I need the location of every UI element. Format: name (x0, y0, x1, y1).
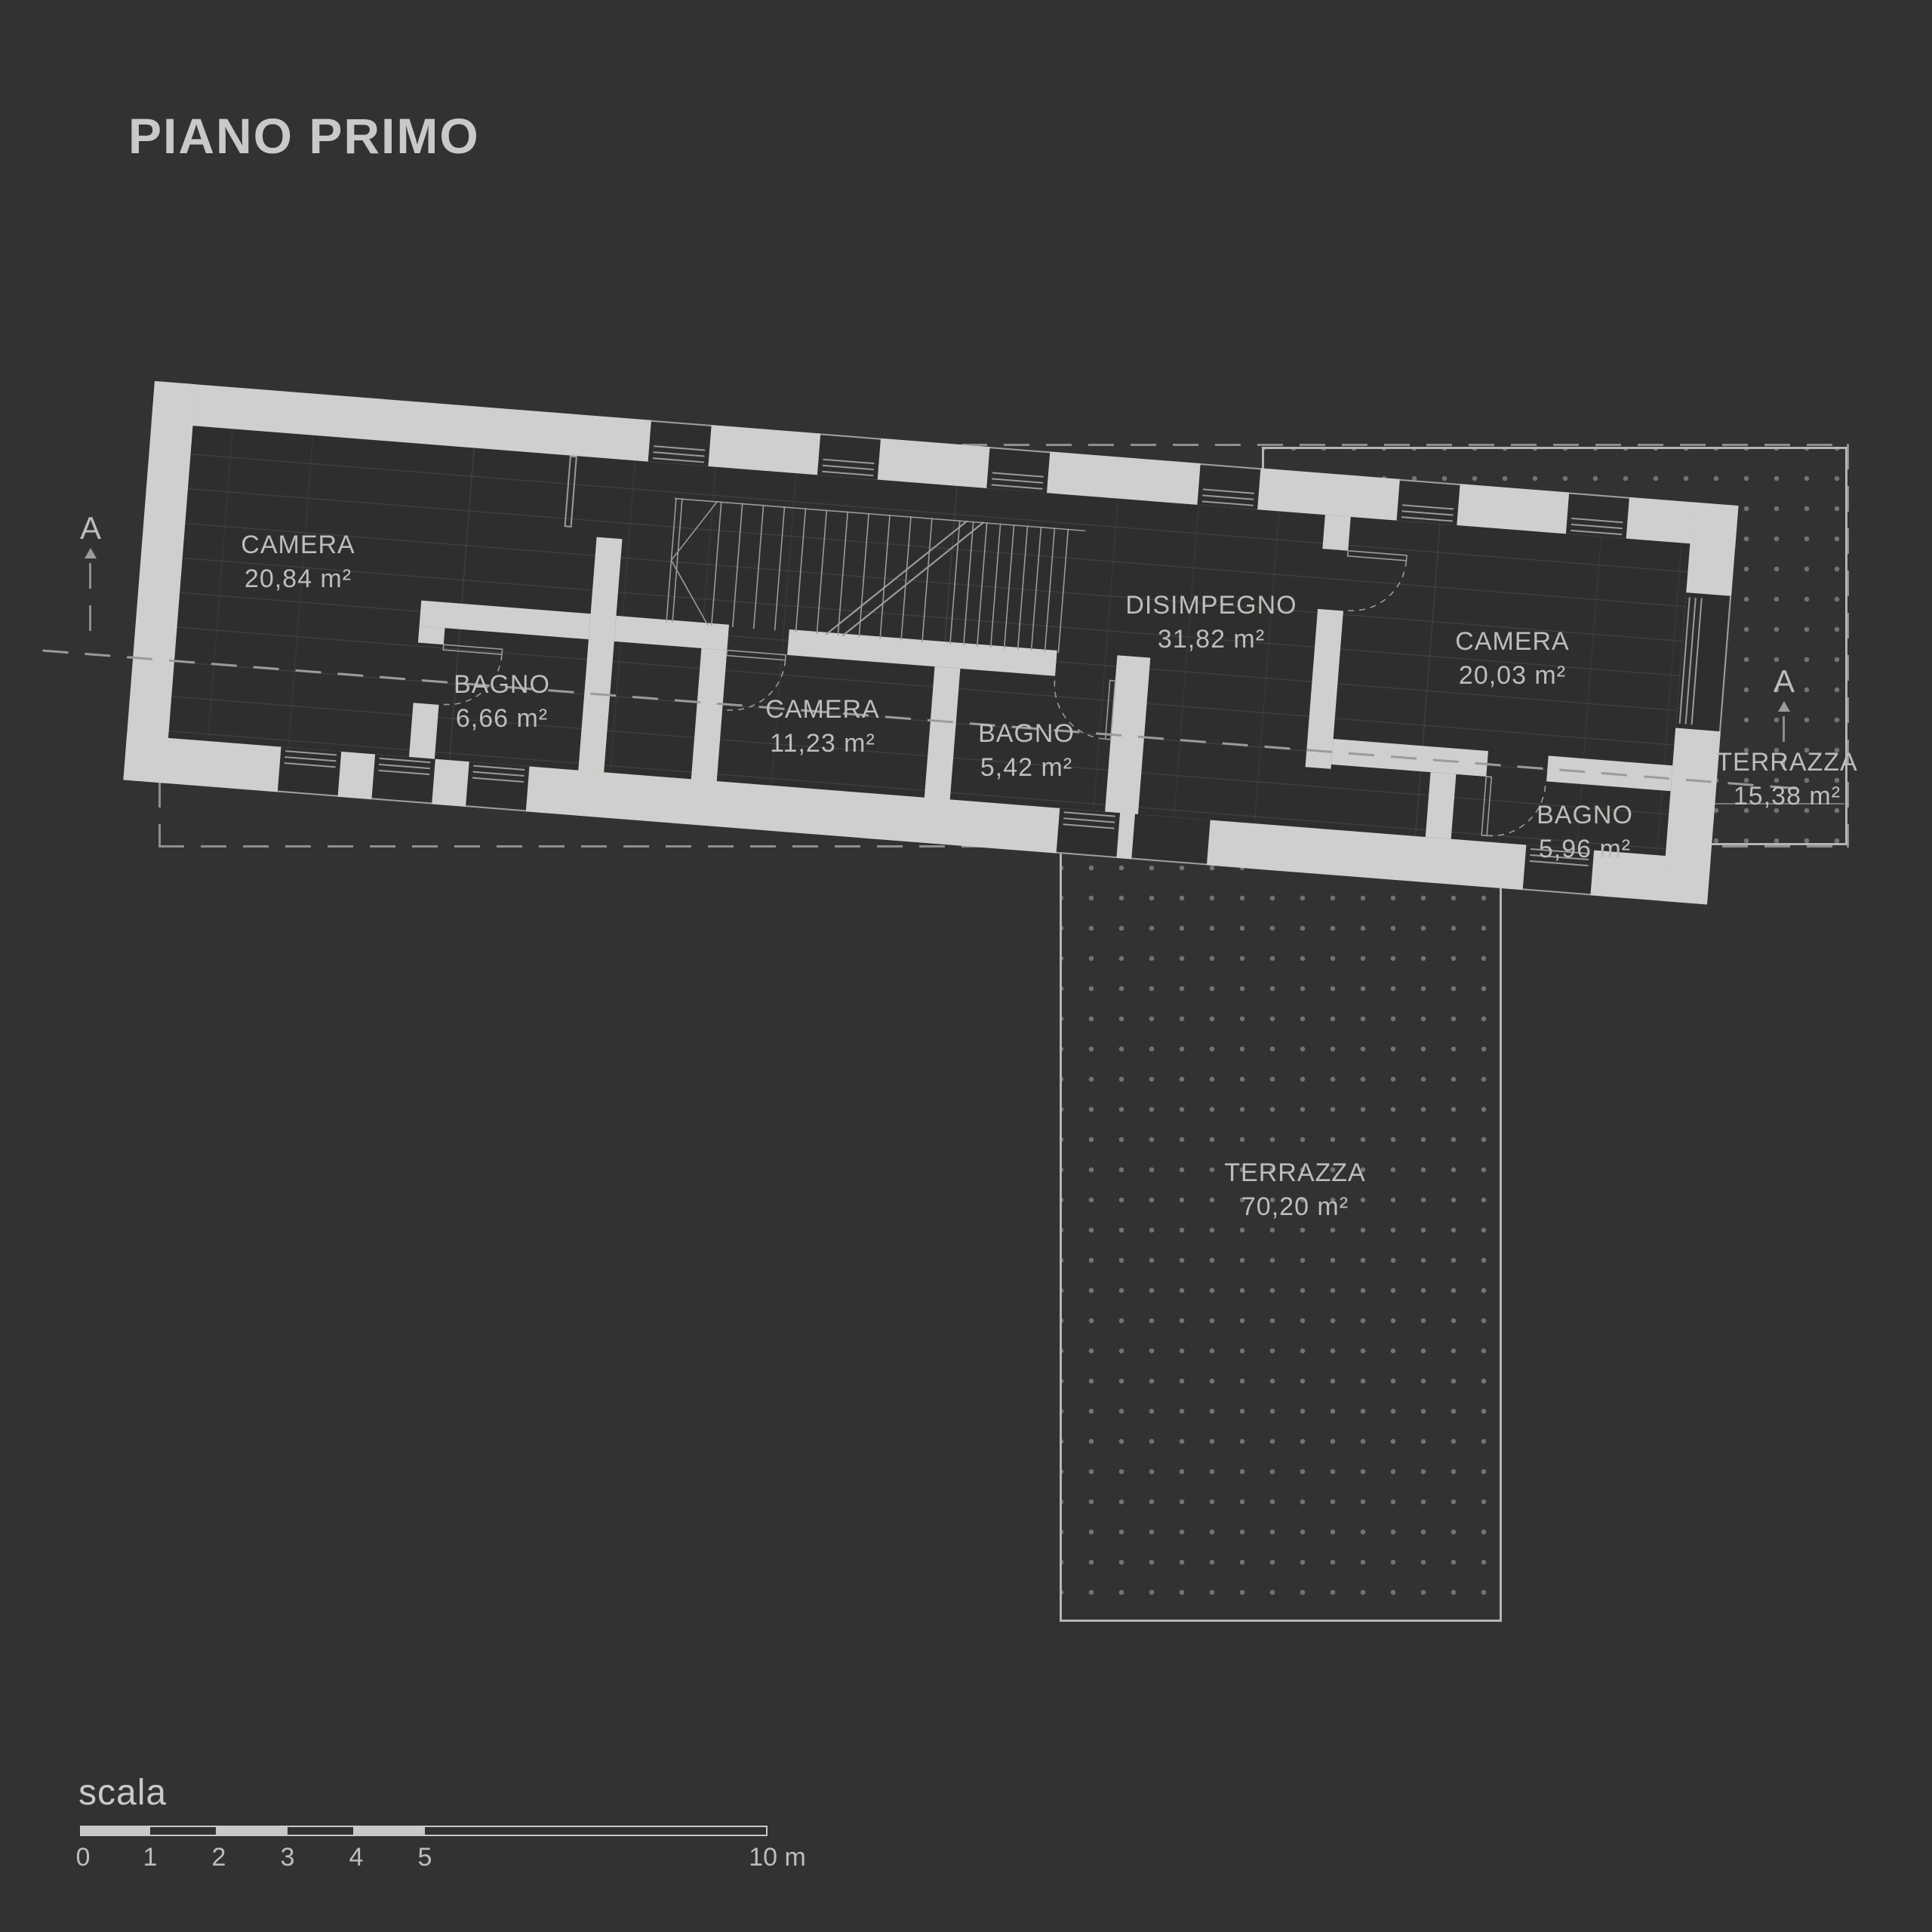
scale-tick-5: 5 (418, 1843, 432, 1872)
section-lead-left (89, 563, 91, 648)
window (986, 447, 1050, 493)
room-label-terrazza-1: TERRAZZA 15,38 m² (1716, 746, 1857, 814)
room-area: 15,38 m² (1716, 780, 1857, 814)
scale-tick-0: 0 (76, 1843, 91, 1872)
scale-segment (149, 1826, 217, 1836)
wall-bagno3-left (1426, 772, 1457, 838)
scale-tick-10m: 10 m (749, 1843, 806, 1872)
scale-label: scala (78, 1772, 167, 1814)
window (1675, 592, 1731, 731)
window (1397, 479, 1460, 525)
scale-bar (80, 1826, 768, 1836)
door (1343, 551, 1411, 619)
room-name: CAMERA (765, 693, 879, 727)
wall-bagno1-left-a (418, 626, 445, 645)
room-name: BAGNO (1537, 798, 1633, 832)
window (278, 747, 341, 797)
room-area: 70,20 m² (1224, 1190, 1365, 1224)
room-name: TERRAZZA (1716, 746, 1857, 780)
room-label-bagno-1: BAGNO 6,66 m² (454, 668, 550, 736)
wall-v5-a (1322, 515, 1350, 551)
room-label-camera-2: CAMERA 11,23 m² (765, 693, 879, 761)
window (466, 761, 529, 811)
room-area: 31,82 m² (1125, 623, 1297, 657)
room-name: BAGNO (454, 668, 550, 702)
room-label-disimpegno: DISIMPEGNO 31,82 m² (1125, 589, 1297, 657)
wall-bagno1-left-b (409, 703, 439, 760)
section-marker-a-right: A (1774, 663, 1795, 700)
room-name: BAGNO (978, 717, 1075, 751)
room-area: 6,66 m² (454, 702, 550, 736)
window (817, 433, 881, 479)
room-label-camera-3: CAMERA 20,03 m² (1455, 625, 1569, 693)
window (371, 754, 435, 804)
scale-tick-2: 2 (212, 1843, 226, 1872)
room-area: 20,03 m² (1455, 659, 1569, 693)
room-label-bagno-3: BAGNO 5,96 m² (1537, 798, 1633, 866)
scale-segment (80, 1826, 149, 1836)
room-name: DISIMPEGNO (1125, 589, 1297, 623)
room-label-bagno-2: BAGNO 5,42 m² (978, 717, 1075, 785)
room-area: 11,23 m² (765, 727, 879, 761)
room-name: TERRAZZA (1224, 1156, 1365, 1190)
window (648, 420, 712, 466)
window (1566, 493, 1629, 539)
section-marker-a-left: A (80, 510, 101, 546)
floor-plan-page: { "title": "PIANO PRIMO", "floor_plan": … (0, 0, 1932, 1932)
section-arrow-left-icon (85, 548, 97, 558)
scale-tick-4: 4 (349, 1843, 364, 1872)
room-label-terrazza-2: TERRAZZA 70,20 m² (1224, 1156, 1365, 1224)
page-title: PIANO PRIMO (128, 107, 480, 165)
room-name: CAMERA (241, 528, 355, 562)
scale-segment (355, 1826, 423, 1836)
window (1057, 808, 1120, 858)
scale-segment (286, 1826, 355, 1836)
scale-segment (217, 1826, 286, 1836)
room-area: 20,84 m² (241, 562, 355, 596)
section-arrow-right-icon (1778, 701, 1790, 712)
scale-segment (423, 1826, 768, 1836)
scale-tick-3: 3 (281, 1843, 295, 1872)
terrace-door-opening (1131, 814, 1210, 866)
window (1197, 463, 1260, 509)
room-name: CAMERA (1455, 625, 1569, 659)
room-label-camera-1: CAMERA 20,84 m² (241, 528, 355, 596)
scale-tick-1: 1 (143, 1843, 158, 1872)
room-area: 5,96 m² (1537, 832, 1633, 866)
room-area: 5,42 m² (978, 751, 1075, 785)
